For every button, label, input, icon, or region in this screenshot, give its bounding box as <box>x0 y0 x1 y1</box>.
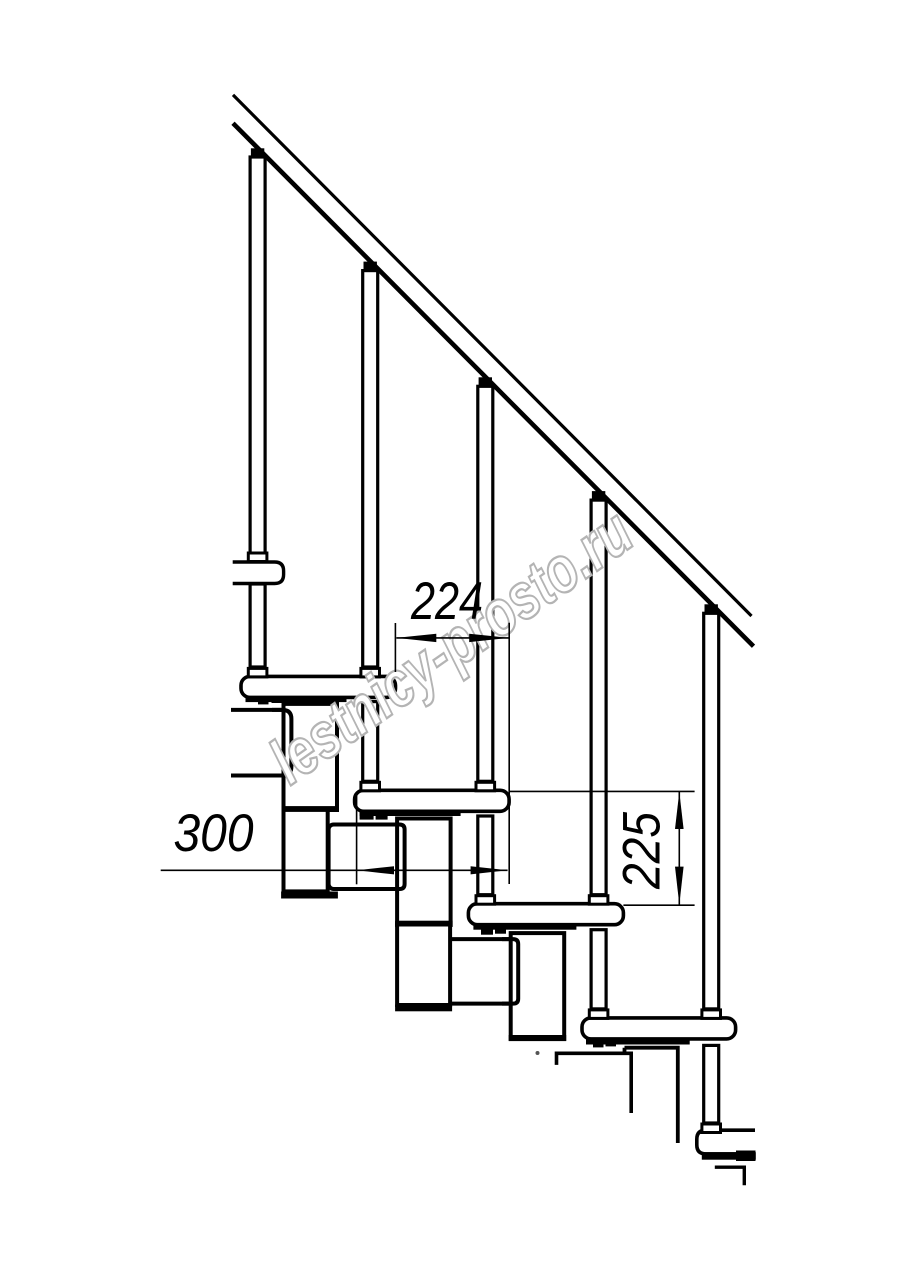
svg-text:225: 225 <box>613 812 672 890</box>
svg-text:300: 300 <box>174 804 254 863</box>
svg-text:224: 224 <box>410 572 483 631</box>
